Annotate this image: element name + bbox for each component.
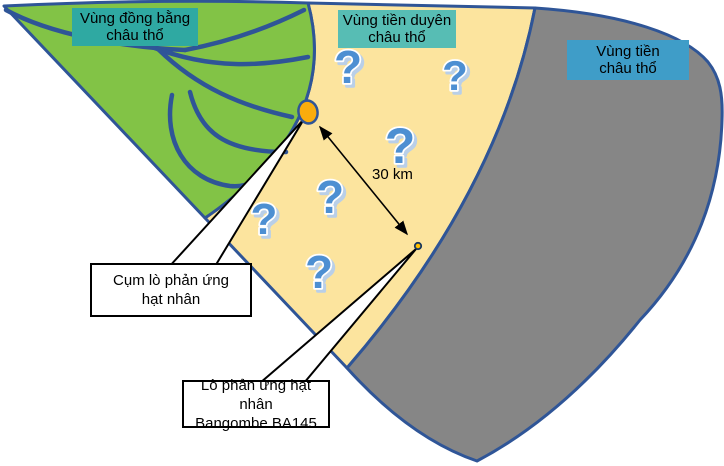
- label-delta-front: Vùng tiền duyên châu thổ: [338, 10, 456, 48]
- label-prodelta: Vùng tiền châu thổ: [567, 40, 689, 80]
- reactor-cluster-callout: Cụm lò phản ứng hạt nhân: [90, 263, 252, 317]
- bangombe-callout: Lò phản ứng hạt nhân Bangombe BA145: [182, 380, 330, 428]
- label-delta-front-line2: châu thổ: [368, 29, 426, 46]
- bangombe-callout-line2: Bangombe BA145: [184, 414, 328, 433]
- reactor-cluster-callout-line2: hạt nhân: [92, 290, 250, 309]
- label-delta-plain-line2: châu thổ: [106, 27, 164, 44]
- label-delta-front-line1: Vùng tiền duyên: [343, 12, 451, 29]
- distance-label: 30 km: [372, 166, 413, 183]
- label-delta-plain-line1: Vùng đồng bằng: [80, 10, 190, 27]
- question-mark-icon: ?: [305, 246, 333, 298]
- question-mark-icon: ?: [334, 41, 362, 93]
- label-prodelta-line1: Vùng tiền: [596, 43, 659, 60]
- question-mark-icon: ?: [251, 195, 278, 244]
- delta-diagram: ?????? Vùng đồng bằng châu thổ Vùng tiền…: [0, 0, 724, 466]
- label-prodelta-line2: châu thổ: [599, 60, 657, 77]
- bangombe-marker: [415, 243, 421, 249]
- reactor-cluster-callout-line1: Cụm lò phản ứng: [92, 271, 250, 290]
- label-delta-plain: Vùng đồng bằng châu thổ: [72, 8, 198, 46]
- bangombe-callout-line1: Lò phản ứng hạt nhân: [184, 376, 328, 414]
- question-mark-icon: ?: [316, 171, 344, 223]
- question-mark-icon: ?: [442, 52, 468, 99]
